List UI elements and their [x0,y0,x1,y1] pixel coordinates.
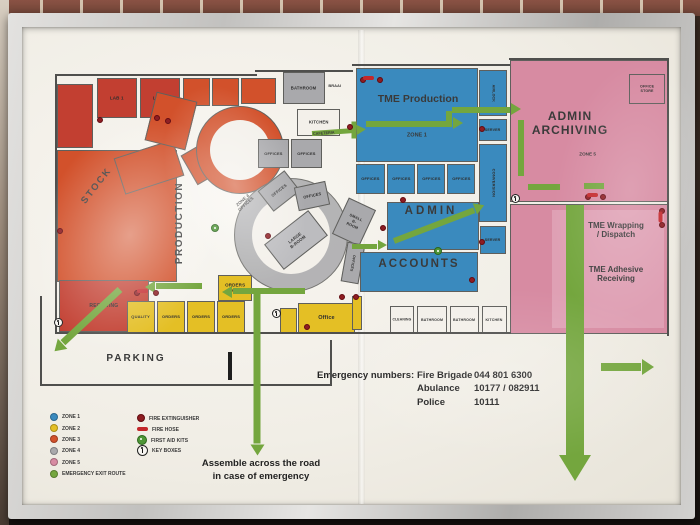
legend-symbol-row: FIRE HOSE [137,424,250,435]
cafeteria-label: CAFETERIA [304,128,344,139]
legend-zone-label: ZONE 5 [62,460,80,466]
extinguisher-icon [265,233,271,239]
extinguisher-icon [304,324,310,330]
office-annex [280,308,297,333]
emergency-service-name: Police [417,397,474,410]
extinguisher-icon [347,124,353,130]
store-room [57,84,93,148]
tme-production-label: TME Production [362,92,474,106]
small-boardroom-label: SMALL B-ROOM [345,213,363,231]
keybox-icon [54,318,63,327]
floor-plan: ZONE 1ZONE 2ZONE 3ZONE 4ZONE 5EMERGENCY … [0,0,700,525]
extinguisher-icon [353,294,359,300]
extinguisher-icon [659,222,665,228]
assembly-note: Assemble across the road in case of emer… [196,457,326,484]
tme-adhesive-label-text: TME Adhesive Receiving [589,265,643,284]
cafeteria-label-text: CAFETERIA [313,130,335,136]
legend-symbols: FIRE EXTINGUISHERFIRE HOSEFIRST AID KITS… [137,413,250,456]
hose-icon [363,76,374,80]
exit-route-tme-edge [352,121,357,138]
exit-arrow-dispatch-south [566,205,584,455]
wall-segment [667,58,669,336]
extinguisher-icon [469,277,475,283]
lab-1-label: LAB 1 [110,95,124,100]
keybox-icon [137,445,148,456]
extinguisher-icon [377,77,383,83]
kitchen-b: KITCHEN [482,306,507,334]
wall-segment [509,58,669,60]
zone-color-icon [50,447,58,455]
extinguisher-icon [600,194,606,200]
legend-symbol-row: KEY BOXES [137,445,250,456]
legend-symbol-row: FIRST AID KITS [137,435,250,446]
tme-wrapping-label-text: TME Wrapping / Dispatch [588,221,644,240]
arrow-head [642,359,654,375]
production-label-text: PRODUCTION [174,182,186,264]
zone-color-icon [50,424,58,432]
extinguisher-icon [339,294,345,300]
extinguisher-icon [165,118,171,124]
firstaid-icon [137,435,147,445]
airlock-label: AIRLOCK [491,84,495,101]
emergency-service-number: 10177 / 082911 [474,383,540,396]
quality-label: QUALITY [132,315,151,320]
admin-label: ADMIN [392,205,470,219]
exit-arrow-tme [366,121,452,127]
extinguisher-icon [57,228,63,234]
wall-segment [330,340,332,386]
keybox-icon [511,194,520,203]
accounts-label-text: ACCOUNTS [378,258,459,272]
emergency-service-number: 10111 [474,397,499,410]
large-boardroom-label: LARGE B-ROOM [286,230,307,249]
arrow-head [453,117,463,129]
hose-icon [587,193,598,197]
offices-blue-b-label: OFFICES [392,177,410,182]
orders-2: ORDERS [187,301,215,333]
exit-arrow-orders [156,283,202,289]
server-room-b-label: SERVER [485,238,501,242]
legend-symbol-label: KEY BOXES [152,448,181,454]
admin-label-text: ADMIN [405,205,458,219]
emergency-service-name: Abulance [417,383,474,396]
emergency-number-row: Abulance10177 / 082911 [417,383,577,396]
accounts-label: ACCOUNTS [366,258,472,272]
extinguisher-icon [479,239,485,245]
offices-gray-d-label: OFFICES [303,192,322,201]
keybox-icon [272,309,281,318]
conversion-label: CONVERSION [491,169,496,197]
legend-symbol-row: FIRE EXTINGUISHER [137,413,250,424]
legend-symbol-label: FIRE HOSE [152,426,179,432]
wall-segment [255,70,353,72]
orders-3: ORDERS [217,301,245,333]
zone-color-icon [50,413,58,421]
extinguisher-icon [97,117,103,123]
tme-wrapping-label: TME Wrapping / Dispatch [578,218,654,242]
extinguisher-icon [479,126,485,132]
legend-symbol-label: FIRE EXTINGUISHER [149,416,199,422]
zone5-label: ZONE 5 [568,150,608,158]
offices-blue-b: OFFICES [387,164,415,194]
zone-color-icon [50,458,58,466]
kitchen-top-label: KITCHEN [309,120,329,125]
firstaid-icon [434,247,442,255]
quality: QUALITY [127,301,155,333]
extinguisher-icon [380,225,386,231]
parking-label-text: PARKING [106,353,165,365]
legend-zone-row: EMERGENCY EXIT ROUTE [50,468,189,479]
emergency-numbers-rows: Fire Brigade044 801 6300Abulance10177 / … [417,370,577,410]
hose-icon [137,289,148,293]
wall-segment [352,64,510,66]
arrow-head [222,286,232,298]
offices-blue-d-label: OFFICES [452,177,470,182]
offices-blue-a: OFFICES [356,164,385,194]
production-label: PRODUCTION [173,173,187,273]
orders-3-label: ORDERS [222,315,240,320]
wall-segment [40,384,332,386]
assembly-note-line2: in case of emergency [196,470,326,483]
emergency-service-name: Fire Brigade [417,370,474,383]
braai-label: BRAAI [320,82,350,90]
offices-gray-b-label: OFFICES [297,151,315,156]
cleaning: CLEANING [390,306,414,334]
emergency-service-number: 044 801 6300 [474,370,532,383]
bathroom-b: BATHROOM [450,306,479,334]
office-label: Office [318,315,334,322]
orders-1: ORDERS [157,301,185,333]
production-room-c [241,78,276,104]
extinguisher-icon [137,414,145,422]
parking-label: PARKING [98,352,174,366]
tme-production-hall [356,68,478,162]
office-store-label: OFFICE STORE [640,85,654,94]
extinguisher-icon [400,197,406,203]
extinguisher-icon [153,290,159,296]
bathroom-b-label: BATHROOM [453,318,475,322]
yellow-store [352,296,362,330]
wall-segment [228,352,232,380]
zone1-label-text: ZONE 1 [407,132,427,138]
exit-route-pink-b [528,184,560,190]
wall-segment [55,74,257,76]
bathroom-top-label: BATHROOM [291,85,317,90]
emergency-number-row: Fire Brigade044 801 6300 [417,370,577,383]
zone1-label: ZONE 1 [394,131,440,140]
assembly-note-line1: Assemble across the road [196,457,326,470]
braai-label-text: BRAAI [329,84,342,89]
wall-segment [55,332,511,334]
production-room-b [212,78,239,106]
office-store: OFFICE STORE [629,74,665,104]
extinguisher-icon [154,115,160,121]
offices-blue-d: OFFICES [447,164,475,194]
server-room-a-label: SERVER [485,128,501,132]
admin-archiving-label-text: ADMIN ARCHIVING [532,109,608,137]
exit-arrow-east [601,363,641,371]
exit-arrow-mid [233,288,305,294]
exit-route-pink-c [584,183,604,189]
offices-gray-a: OFFICES [258,139,289,168]
legend-symbol-label: FIRST AID KITS [151,437,188,443]
zone-color-icon [50,470,58,478]
legend-zone-label: ZONE 4 [62,448,80,454]
wall-segment [40,296,42,386]
hose-icon [658,212,662,223]
bathroom-top: BATHROOM [283,72,325,104]
legend-zone-label: ZONE 1 [62,414,80,420]
arrow-head [559,455,591,481]
exit-arrow-accounts [352,244,377,249]
cleaning-label: CLEANING [393,318,412,322]
zone-color-icon [50,435,58,443]
tme-production-label-text: TME Production [378,93,459,105]
legend-zone-label: EMERGENCY EXIT ROUTE [62,471,126,477]
arrow-head [378,240,387,250]
offices-blue-c: OFFICES [417,164,445,194]
orders-2-label: ORDERS [192,315,210,320]
wall-segment [55,74,57,334]
arrow-head [356,123,366,134]
offices-gray-c-label: OFFICES [270,183,287,198]
offices-gray-a-label: OFFICES [264,151,282,156]
zone5-label-text: ZONE 5 [580,151,597,156]
legend-zone-label: ZONE 2 [62,425,80,431]
offices-gray-e-label: OFFICES [349,254,356,271]
bathroom-a-label: BATHROOM [421,318,443,322]
tme-adhesive-label: TME Adhesive Receiving [578,262,654,286]
hose-icon [137,427,148,431]
firstaid-icon [211,224,219,232]
bathroom-a: BATHROOM [417,306,447,334]
lab-1: LAB 1 [97,78,137,118]
orders-1-label: ORDERS [162,315,180,320]
emergency-number-row: Police10111 [417,397,577,410]
arrow-head [250,444,264,455]
exit-arrow-center-south [254,288,261,443]
arrow-head [50,338,68,356]
legend-zone-row: ZONE 5 [50,457,189,468]
offices-blue-c-label: OFFICES [422,177,440,182]
exit-elbow-corridor [446,111,452,127]
admin-archiving-label: ADMIN ARCHIVING [514,108,626,138]
legend-zone-label: ZONE 3 [62,437,80,443]
offices-blue-a-label: OFFICES [361,177,379,182]
kitchen-b-label: KITCHEN [486,318,503,322]
offices-gray-b: OFFICES [291,139,322,168]
exit-arrow-corridor [452,107,510,113]
